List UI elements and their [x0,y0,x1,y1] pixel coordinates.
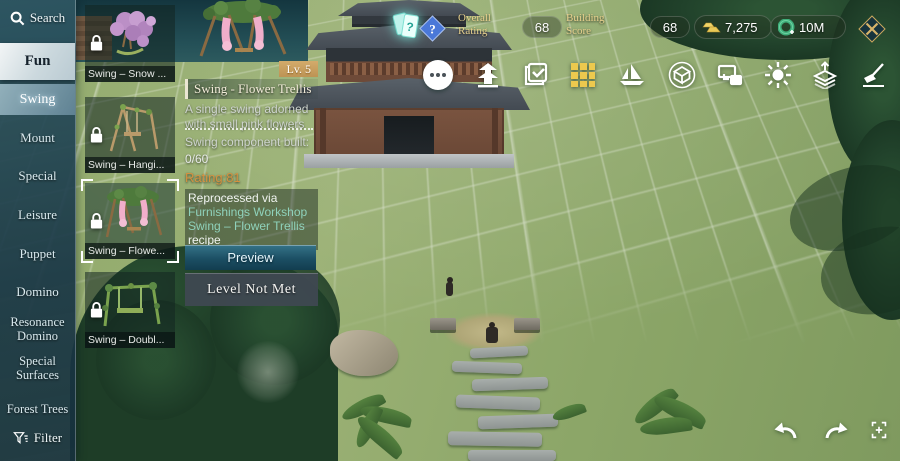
item-tile-swing-snow[interactable]: Swing – Snow ... [85,5,175,82]
search-button[interactable]: Search [0,10,75,26]
sidebar-tab-swing[interactable]: Swing [0,84,75,115]
center-view-button[interactable] [866,418,892,442]
pagoda-stone-base [304,154,514,168]
green-coin-plus-icon [778,19,795,36]
pagoda-doorway [384,116,434,156]
layout-icon [716,61,744,89]
select-check-icon [521,61,549,89]
reprocess-source-link: Furnishings Workshop Swing – Flower Trel… [188,205,307,233]
pagoda-build-button[interactable] [474,61,502,89]
rating-line: Rating:81 [185,170,241,185]
gold-ingot-icon [702,20,721,34]
coin-amount: 10M [799,20,824,35]
level-badge: Lv. 5 [279,61,318,77]
item-label: Swing – Snow ... [85,66,175,82]
item-label: Swing – Doubl... [85,332,175,348]
layout-windows-button[interactable] [716,61,744,89]
item-tile-swing-flower-selected[interactable]: Swing – Flowe... [85,183,175,259]
sidebar-tab-leisure[interactable]: Leisure [0,208,75,222]
dotted-divider [185,128,313,130]
item-label: Swing – Hangi... [85,157,175,173]
pagoda-pillar [320,108,326,156]
pagoda-icon [474,61,502,89]
item-thumbnail [93,99,167,157]
focus-target-icon [866,418,892,442]
filter-label: Filter [34,430,62,446]
cube-icon [668,61,696,89]
pagoda-railing [330,63,488,75]
sidebar-tab-special-surfaces[interactable]: Special Surfaces [0,355,75,383]
lighting-sun-button[interactable] [764,61,792,89]
undo-button[interactable] [773,418,799,442]
path-stone [478,414,558,430]
boat-view-button[interactable] [618,61,646,89]
path-stone [448,431,542,447]
building-score-value: 68 [650,16,690,38]
pagoda-pillar [492,108,498,156]
game-screen: ? ? Overall Rating 68 Building Score 68 … [0,0,900,461]
preview-button[interactable]: Preview [185,245,316,270]
sun-icon [764,61,792,89]
item-tile-swing-hanging[interactable]: Swing – Hangi... [85,97,175,173]
level-not-met-button[interactable]: Level Not Met [185,273,318,306]
clear-broom-button[interactable] [859,61,887,89]
component-count: 0/60 [185,152,208,166]
sidebar-tab-special[interactable]: Special [0,169,75,183]
selection-bracket [81,251,93,263]
quest-cards-marker[interactable]: ? [391,10,421,49]
selection-bracket [81,179,93,191]
component-built-label: Swing component built: [185,135,318,149]
layers-up-icon [811,61,839,89]
sidebar-tab-forest-trees[interactable]: Forest Trees [0,403,75,417]
elevate-layers-button[interactable] [811,61,839,89]
gold-currency[interactable]: 7,275 [694,15,772,39]
overall-rating-value: 68 [522,16,562,38]
item-thumbnail [93,185,167,243]
sidebar-tab-fun[interactable]: Fun [0,43,75,80]
grid-toggle-button[interactable] [569,61,597,89]
search-icon [10,11,25,26]
coin-currency[interactable]: 10M [770,15,846,39]
help-diamond-marker[interactable]: ? [419,15,446,47]
item-title: Swing - Flower Trellis [185,79,318,99]
path-stone [468,450,556,461]
lock-icon [89,126,104,149]
item-description: A single swing adorned with small pink f… [185,102,317,131]
filter-funnel-icon [13,430,29,446]
sidebar-tab-resonance-domino[interactable]: Resonance Domino [0,316,75,344]
more-options-button[interactable] [423,60,453,90]
item-thumbnail [93,274,167,332]
character [486,327,498,343]
grid-icon [570,62,596,88]
reprocess-prefix: Reprocessed via [188,191,277,205]
diamond-question-text: ? [429,22,436,37]
broom-icon [859,61,887,89]
item-label: Swing – Flowe... [85,243,175,259]
lock-icon [89,301,104,324]
building-score-label: Building Score [566,12,626,37]
character [446,282,453,296]
selection-bracket [167,251,179,263]
stone-bench [430,318,456,330]
collapse-hud-button[interactable] [857,14,887,49]
lock-icon [89,34,104,57]
gold-amount: 7,275 [725,20,758,35]
search-label: Search [30,10,65,26]
cube-view-button[interactable] [668,61,696,89]
sidebar-tab-mount[interactable]: Mount [0,131,75,145]
overall-rating-label: Overall Rating [458,12,518,37]
redo-arrow-icon [823,418,849,442]
item-tile-swing-double[interactable]: Swing – Doubl... [85,272,175,348]
sidebar-tab-domino[interactable]: Domino [0,285,75,299]
selection-bracket [167,179,179,191]
stone-bench [514,318,540,330]
item-preview-image [187,0,295,58]
lens-flare [237,341,299,403]
reprocess-info: Reprocessed via Furnishings Workshop Swi… [185,189,318,250]
filter-button[interactable]: Filter [0,430,75,446]
ellipsis-icon [429,72,447,78]
sidebar-tab-puppet[interactable]: Puppet [0,247,75,261]
select-confirm-button[interactable] [521,61,549,89]
undo-arrow-icon [773,418,799,442]
boat-icon [618,61,646,89]
item-thumbnail [93,7,167,65]
collapse-diamond-icon [857,14,887,44]
redo-button[interactable] [823,418,849,442]
lock-icon [89,212,104,235]
